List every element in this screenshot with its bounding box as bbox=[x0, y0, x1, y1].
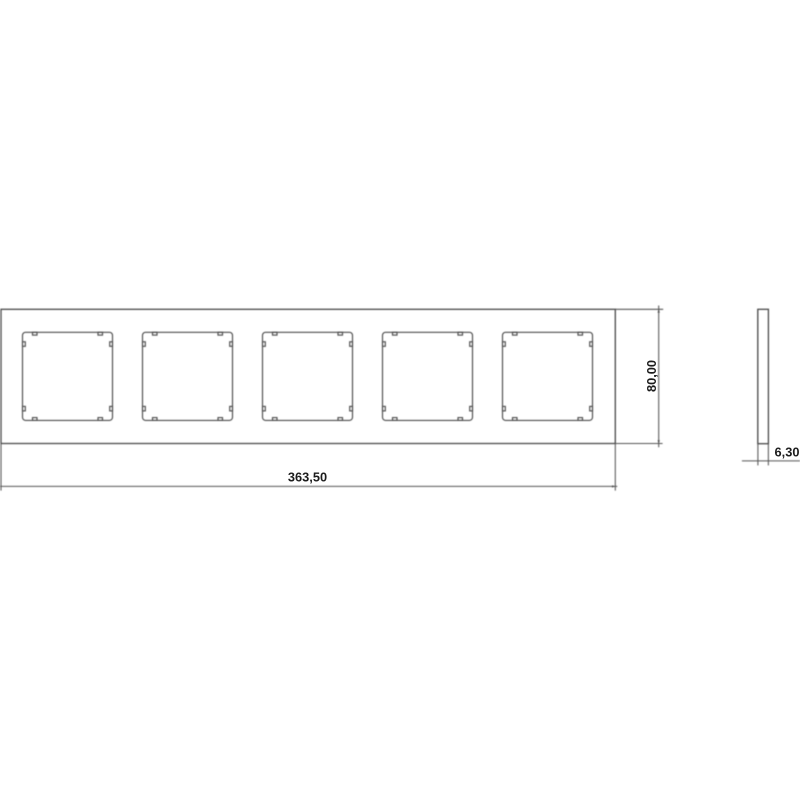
svg-text:363,50: 363,50 bbox=[288, 470, 327, 485]
svg-text:80,00: 80,00 bbox=[644, 360, 659, 392]
svg-text:6,30: 6,30 bbox=[775, 444, 800, 459]
